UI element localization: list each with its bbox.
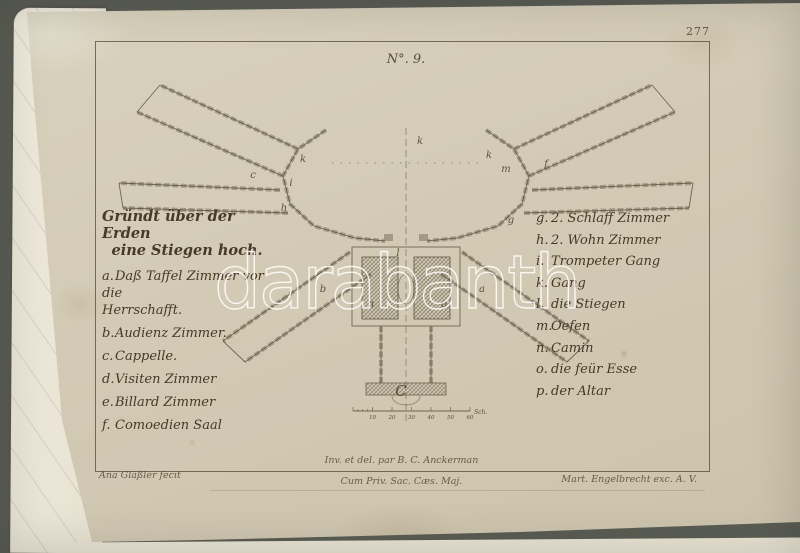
- item-text: Trompeter Gang: [551, 254, 660, 269]
- item-text: Oefen: [551, 319, 590, 334]
- scale-tick-label: 50: [447, 415, 454, 421]
- room-labels: ckihkkmfgbalnoC: [250, 136, 550, 400]
- scale-bar: 10 20 30 40 50 60 Sch.: [353, 407, 487, 421]
- item-text: Audienz Zimmer.: [115, 326, 227, 341]
- item-key: o.: [536, 362, 551, 377]
- legend-item-f: f.Comoedien Saal: [102, 417, 272, 434]
- legend-item-m: m.Oefen: [536, 319, 696, 341]
- item-key: e.: [102, 394, 115, 411]
- scale-tick-label: 10: [369, 415, 376, 421]
- legend-item-l: l.die Stiegen: [536, 297, 696, 319]
- room-label: k: [417, 136, 423, 147]
- item-text: Cappelle.: [115, 349, 177, 364]
- item-key: k.: [536, 276, 551, 291]
- item-key: i.: [536, 254, 551, 269]
- room-label: o: [441, 299, 447, 310]
- item-key: l.: [536, 297, 551, 312]
- room-label: a: [479, 284, 485, 295]
- item-key: p.: [536, 384, 551, 399]
- engraving-sheet: 277 N°. 9.: [0, 0, 800, 553]
- scale-tick-label: 60: [467, 415, 474, 421]
- credit-publisher: Mart. Engelbrecht exc. A. V.: [95, 474, 697, 485]
- item-text: Billard Zimmer: [115, 395, 215, 410]
- legend-item-c: c.Cappelle.: [102, 348, 272, 365]
- item-text: Camin: [551, 341, 594, 356]
- legend-item-d: d.Visiten Zimmer: [102, 371, 272, 388]
- room-label: C: [395, 382, 407, 400]
- room-label: i: [289, 178, 292, 189]
- item-key: h.: [536, 233, 551, 248]
- room-label: h: [281, 203, 287, 214]
- legend-right: g.2. Schlaff Zimmer h.2. Wohn Zimmer i.T…: [536, 211, 696, 405]
- legend-item-b: b.Audienz Zimmer.: [102, 325, 272, 342]
- item-key: d.: [102, 371, 115, 388]
- legend-item-k: k.Gang: [536, 276, 696, 298]
- legend-left: Gründt über der Erden eine Stiegen hoch.…: [102, 208, 272, 434]
- room-label: k: [486, 150, 492, 161]
- item-text: Gang: [551, 276, 586, 291]
- legend-item-a: a.Daß Taffel Zimmer vor die Herrschafft.: [102, 268, 272, 319]
- item-text: Visiten Zimmer: [115, 372, 216, 387]
- room-label: b: [320, 284, 326, 295]
- legend-item-n: n.Camin: [536, 341, 696, 363]
- legend-item-g: g.2. Schlaff Zimmer: [536, 211, 696, 233]
- item-key: g.: [536, 211, 551, 226]
- item-text: die Stiegen: [551, 297, 626, 312]
- legend-title: Gründt über der Erden eine Stiegen hoch.: [102, 208, 272, 259]
- room-label: g: [508, 215, 514, 226]
- scale-tick-label: 30: [408, 415, 415, 421]
- item-text: Daß Taffel Zimmer vor die: [102, 269, 264, 301]
- room-label: k: [300, 154, 306, 165]
- item-key: m.: [536, 319, 551, 334]
- item-text: die feür Esse: [551, 362, 637, 377]
- item-key: n.: [536, 341, 551, 356]
- room-label: n: [368, 299, 374, 310]
- item-key: f.: [102, 417, 115, 434]
- plate-scratch-line: [210, 490, 705, 491]
- credit-inventor: Inv. et del. par B. C. Anckerman: [95, 455, 708, 466]
- scale-tick-label: 40: [427, 415, 435, 421]
- legend-item-e: e.Billard Zimmer: [102, 394, 272, 411]
- photo-background: 277 N°. 9.: [0, 0, 800, 553]
- legend-item-p: p.der Altar: [536, 384, 696, 406]
- item-text: Comoedien Saal: [115, 418, 222, 433]
- item-text: der Altar: [551, 384, 610, 399]
- scale-tick-label: 20: [388, 415, 396, 421]
- room-label: c: [250, 170, 256, 181]
- item-text-line2: Herrschafft.: [102, 302, 272, 319]
- scale-unit-label: Sch.: [474, 409, 487, 416]
- legend-item-o: o.die feür Esse: [536, 362, 696, 384]
- item-key: c.: [102, 348, 115, 365]
- item-key: b.: [102, 325, 115, 342]
- item-key: a.: [102, 268, 115, 285]
- item-text: 2. Wohn Zimmer: [551, 233, 660, 248]
- room-label: m: [501, 164, 510, 175]
- legend-item-i: i.Trompeter Gang: [536, 254, 696, 276]
- item-text: 2. Schlaff Zimmer: [551, 211, 669, 226]
- room-label: l: [396, 248, 399, 259]
- legend-item-h: h.2. Wohn Zimmer: [536, 233, 696, 255]
